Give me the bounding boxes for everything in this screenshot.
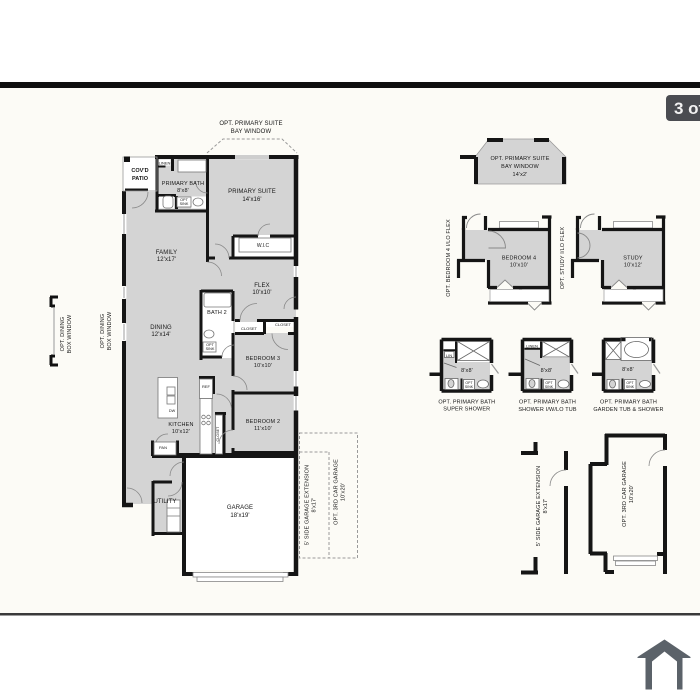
svg-text:FLEX: FLEX xyxy=(254,283,269,289)
svg-text:10'x12': 10'x12' xyxy=(624,263,642,269)
svg-text:10'x20': 10'x20' xyxy=(341,483,347,501)
svg-text:SUPER SHOWER: SUPER SHOWER xyxy=(443,407,490,413)
svg-text:SINK: SINK xyxy=(206,347,215,351)
svg-text:BAY WINDOW: BAY WINDOW xyxy=(231,129,272,135)
svg-text:8'x8': 8'x8' xyxy=(541,368,553,374)
svg-text:OPT. STUDY I/LO FLEX: OPT. STUDY I/LO FLEX xyxy=(560,227,566,290)
svg-text:BOX WINDOW: BOX WINDOW xyxy=(67,314,73,353)
svg-text:BEDROOM 3: BEDROOM 3 xyxy=(246,356,280,362)
svg-text:SINK: SINK xyxy=(626,385,635,389)
svg-text:LIN: LIN xyxy=(446,353,452,358)
svg-text:KITCHEN: KITCHEN xyxy=(168,422,193,428)
svg-text:CLOSET: CLOSET xyxy=(275,322,292,327)
svg-text:14'x2': 14'x2' xyxy=(513,172,528,178)
svg-text:8'x8': 8'x8' xyxy=(461,368,473,374)
svg-text:OPT. PRIMARY BATH: OPT. PRIMARY BATH xyxy=(438,400,495,406)
svg-text:BEDROOM 4: BEDROOM 4 xyxy=(502,256,536,262)
svg-text:SINK: SINK xyxy=(545,385,554,389)
svg-text:8'x17': 8'x17' xyxy=(543,499,549,514)
svg-text:11'x10': 11'x10' xyxy=(254,426,272,432)
svg-text:OPT. DINING: OPT. DINING xyxy=(60,317,66,352)
svg-text:PRIMARY BATH: PRIMARY BATH xyxy=(162,181,204,187)
svg-text:GARDEN TUB & SHOWER: GARDEN TUB & SHOWER xyxy=(593,407,663,413)
svg-text:OPT. DINING: OPT. DINING xyxy=(100,314,106,349)
svg-text:CLOSET: CLOSET xyxy=(216,426,220,442)
svg-text:14'x16': 14'x16' xyxy=(242,197,261,203)
svg-text:OPT. PRIMARY BATH: OPT. PRIMARY BATH xyxy=(519,400,576,406)
svg-text:UTILITY: UTILITY xyxy=(153,499,176,505)
svg-text:OPT. 3RD CAR GARAGE: OPT. 3RD CAR GARAGE xyxy=(334,459,340,525)
svg-text:10'x12': 10'x12' xyxy=(172,429,190,435)
svg-text:18'x19': 18'x19' xyxy=(230,513,249,519)
svg-text:BOX WINDOW: BOX WINDOW xyxy=(107,311,113,350)
svg-text:12'x14': 12'x14' xyxy=(151,332,170,338)
svg-text:OPT. 3RD CAR GARAGE: OPT. 3RD CAR GARAGE xyxy=(622,461,628,527)
svg-text:8'x8': 8'x8' xyxy=(177,188,189,194)
svg-text:DW: DW xyxy=(169,409,176,413)
svg-text:LINEN: LINEN xyxy=(526,344,538,349)
svg-text:10'x10': 10'x10' xyxy=(510,263,528,269)
svg-text:COV'D: COV'D xyxy=(131,168,148,174)
svg-text:10'x10': 10'x10' xyxy=(252,290,271,296)
svg-text:OPT. PRIMARY SUITE: OPT. PRIMARY SUITE xyxy=(219,121,282,127)
svg-text:PATIO: PATIO xyxy=(132,176,149,182)
svg-text:5' SIDE GARAGE EXTENSION: 5' SIDE GARAGE EXTENSION xyxy=(536,466,542,546)
svg-text:3 of: 3 of xyxy=(674,99,700,118)
svg-text:FAMILY: FAMILY xyxy=(156,250,178,256)
svg-text:SINK: SINK xyxy=(465,385,474,389)
svg-text:DINING: DINING xyxy=(150,325,172,331)
svg-text:REF: REF xyxy=(202,384,211,389)
svg-text:STUDY: STUDY xyxy=(623,256,643,262)
svg-text:8'x8': 8'x8' xyxy=(622,367,634,373)
svg-text:LINEN: LINEN xyxy=(159,161,171,166)
svg-text:BEDROOM 2: BEDROOM 2 xyxy=(246,419,280,425)
svg-text:W.I.C: W.I.C xyxy=(257,243,270,249)
svg-text:SHOWER I/W/LO TUB: SHOWER I/W/LO TUB xyxy=(518,407,577,413)
svg-text:OPT. BEDROOM 4 I/LO FLEX: OPT. BEDROOM 4 I/LO FLEX xyxy=(446,219,452,297)
svg-text:10'x10': 10'x10' xyxy=(254,363,272,369)
svg-text:OPT. PRIMARY SUITE: OPT. PRIMARY SUITE xyxy=(490,156,549,162)
svg-text:SINK: SINK xyxy=(180,202,189,206)
svg-text:10'x20': 10'x20' xyxy=(629,485,635,503)
svg-text:GARAGE: GARAGE xyxy=(227,505,253,511)
svg-text:PRIMARY SUITE: PRIMARY SUITE xyxy=(228,189,276,195)
svg-text:8'x17': 8'x17' xyxy=(312,498,318,513)
svg-text:5' SIDE GARAGE EXTENSION: 5' SIDE GARAGE EXTENSION xyxy=(305,465,311,545)
svg-text:BAY WINDOW: BAY WINDOW xyxy=(501,164,539,170)
svg-text:CLOSET: CLOSET xyxy=(241,326,258,331)
svg-text:12'x17': 12'x17' xyxy=(157,257,176,263)
svg-text:BATH 2: BATH 2 xyxy=(207,310,227,316)
svg-text:PAN: PAN xyxy=(159,445,167,450)
svg-text:OPT. PRIMARY BATH: OPT. PRIMARY BATH xyxy=(600,400,657,406)
